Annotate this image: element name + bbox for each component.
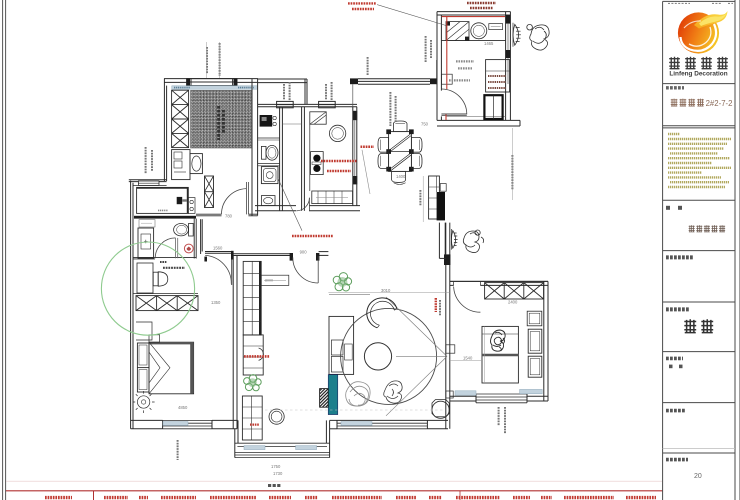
svg-text:3010: 3010 — [381, 288, 391, 293]
svg-text:Linfeng Decoration: Linfeng Decoration — [669, 71, 727, 78]
svg-text:1400: 1400 — [396, 174, 406, 179]
svg-text:780: 780 — [225, 213, 233, 218]
svg-text:1540: 1540 — [463, 356, 473, 361]
svg-text:2#2-7-2: 2#2-7-2 — [706, 99, 733, 108]
svg-text:1465: 1465 — [484, 41, 494, 46]
svg-text:4850: 4850 — [178, 405, 188, 410]
svg-text:1560: 1560 — [213, 245, 223, 250]
svg-text:20: 20 — [694, 473, 702, 480]
svg-text:1750: 1750 — [271, 464, 281, 469]
svg-text:900: 900 — [300, 249, 308, 254]
svg-text:750: 750 — [421, 122, 429, 127]
svg-text:1730: 1730 — [273, 471, 283, 476]
svg-text:1350: 1350 — [211, 300, 221, 305]
svg-text:8000: 8000 — [265, 279, 273, 283]
svg-text:2400: 2400 — [508, 300, 518, 305]
